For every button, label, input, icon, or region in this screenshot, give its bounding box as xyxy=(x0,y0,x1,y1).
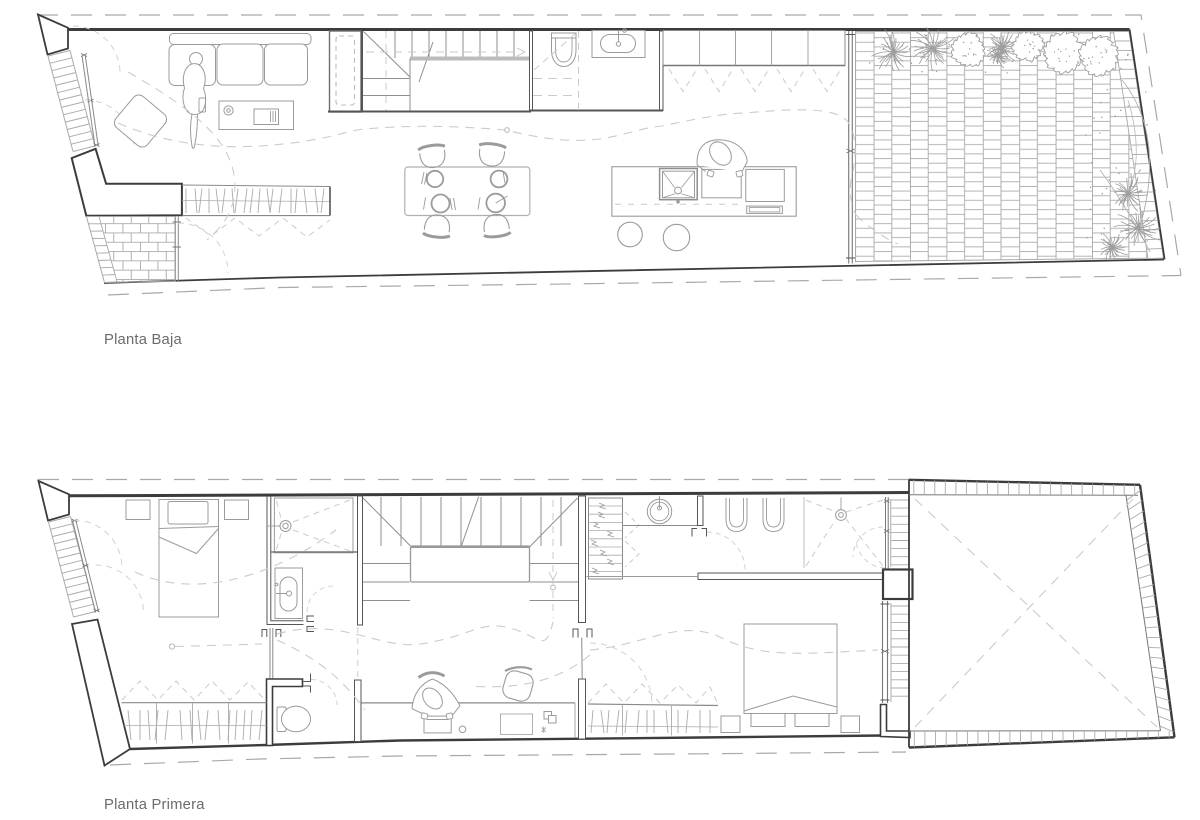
svg-text:Planta Baja: Planta Baja xyxy=(104,332,182,348)
svg-text:Planta Primera: Planta Primera xyxy=(104,797,205,813)
